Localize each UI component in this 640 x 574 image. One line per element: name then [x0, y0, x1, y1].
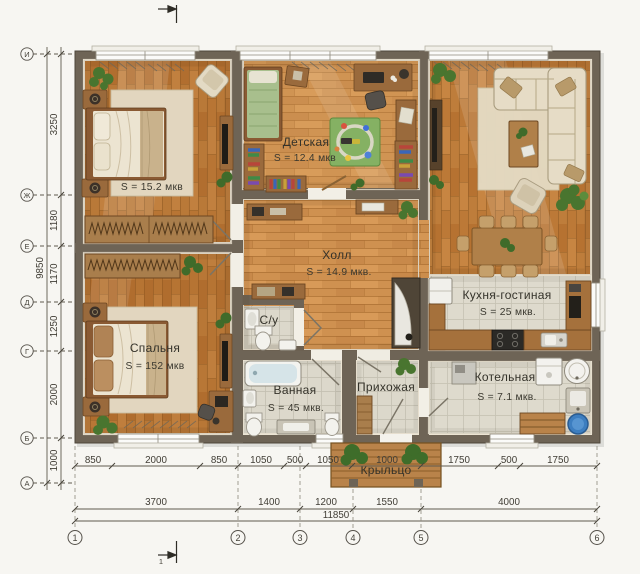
svg-text:С/у: С/у [260, 313, 279, 327]
svg-text:S = 45 мкв.: S = 45 мкв. [268, 403, 324, 414]
svg-text:1050: 1050 [250, 455, 272, 466]
svg-text:S = 25 мкв.: S = 25 мкв. [480, 307, 536, 318]
svg-text:S = 15.2 мкв: S = 15.2 мкв [121, 182, 183, 193]
svg-text:Е: Е [24, 242, 29, 251]
svg-text:500: 500 [287, 455, 304, 466]
svg-text:1180: 1180 [49, 209, 60, 231]
svg-text:Спальня: Спальня [130, 341, 180, 355]
svg-text:1: 1 [72, 533, 77, 543]
svg-text:Б: Б [25, 434, 30, 443]
svg-text:Кухня-гостиная: Кухня-гостиная [462, 288, 551, 302]
svg-text:1550: 1550 [376, 497, 398, 508]
svg-text:11850: 11850 [323, 510, 350, 521]
svg-text:4000: 4000 [498, 497, 520, 508]
svg-text:И: И [24, 50, 29, 59]
svg-text:Котельная: Котельная [475, 370, 536, 384]
svg-text:2000: 2000 [145, 455, 167, 466]
svg-text:4: 4 [350, 533, 355, 543]
svg-text:1750: 1750 [448, 455, 470, 466]
svg-text:Д: Д [24, 298, 29, 307]
svg-text:1000: 1000 [376, 455, 398, 466]
svg-text:1200: 1200 [315, 497, 337, 508]
svg-text:5: 5 [418, 533, 423, 543]
svg-text:Холл: Холл [322, 248, 351, 262]
svg-text:1: 1 [159, 557, 163, 566]
svg-text:850: 850 [85, 455, 102, 466]
svg-text:Ванная: Ванная [274, 383, 317, 397]
svg-text:Ж: Ж [24, 191, 31, 200]
svg-text:3250: 3250 [49, 113, 60, 135]
svg-text:2: 2 [235, 533, 240, 543]
svg-text:1000: 1000 [49, 449, 60, 471]
svg-text:1750: 1750 [547, 455, 569, 466]
svg-text:1170: 1170 [49, 263, 60, 285]
svg-text:Г: Г [25, 347, 29, 356]
svg-text:S = 14.9 мкв.: S = 14.9 мкв. [306, 267, 371, 278]
svg-text:1400: 1400 [258, 497, 280, 508]
svg-text:Детская: Детская [283, 135, 330, 149]
svg-text:850: 850 [211, 455, 228, 466]
svg-text:9850: 9850 [35, 257, 46, 279]
svg-text:А: А [24, 479, 29, 488]
svg-text:3700: 3700 [145, 497, 167, 508]
svg-text:1050: 1050 [317, 455, 339, 466]
svg-text:S = 12.4 мкв: S = 12.4 мкв [274, 153, 336, 164]
svg-text:500: 500 [501, 455, 518, 466]
svg-text:1250: 1250 [49, 315, 60, 337]
svg-text:S = 7.1 мкв.: S = 7.1 мкв. [477, 392, 536, 403]
svg-text:3: 3 [297, 533, 302, 543]
svg-text:S = 152 мкв: S = 152 мкв [126, 361, 185, 372]
svg-text:6: 6 [594, 533, 599, 543]
svg-text:2000: 2000 [49, 383, 60, 405]
svg-text:Прихожая: Прихожая [357, 380, 415, 394]
